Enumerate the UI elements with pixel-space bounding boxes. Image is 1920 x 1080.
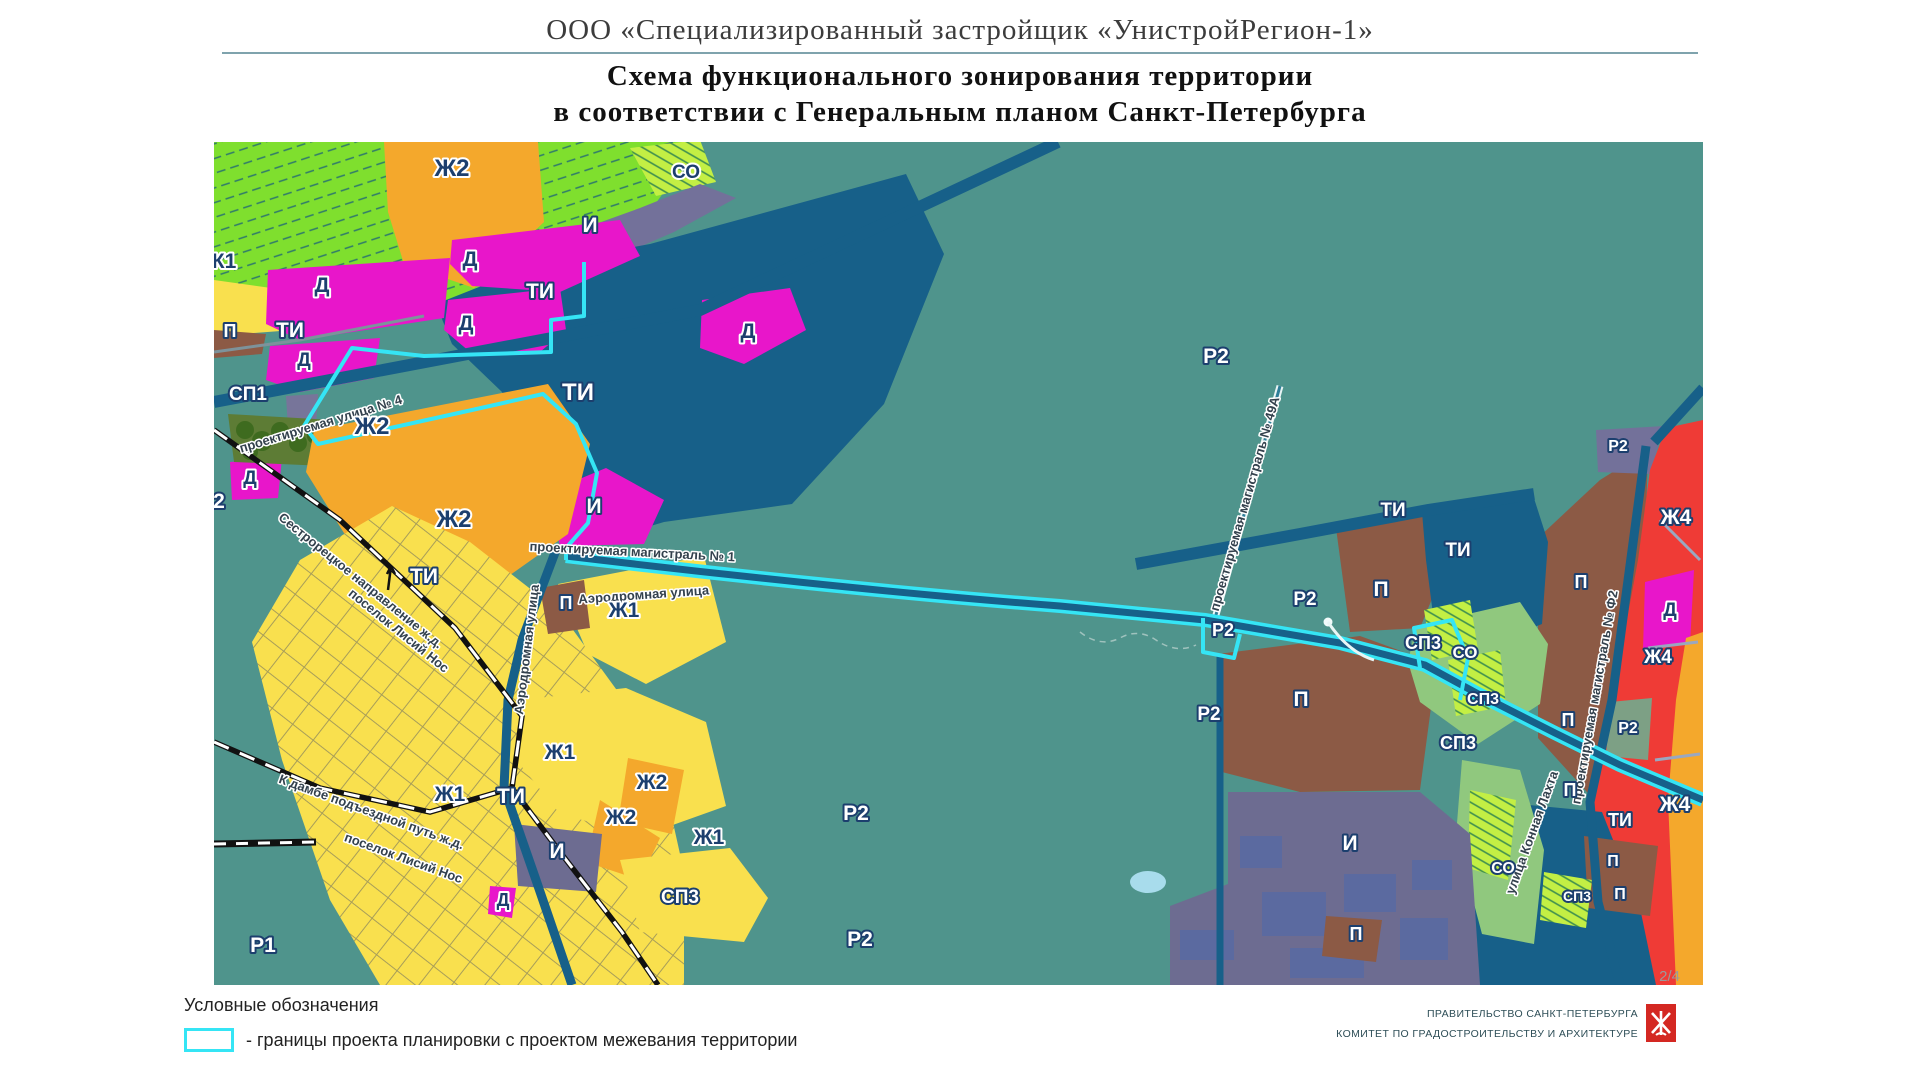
zone-label: Д: [741, 320, 756, 343]
zone-label: К1: [214, 250, 237, 273]
scheme-title-line2: в соответствии с Генеральным планом Санк…: [0, 96, 1920, 129]
zone-label: П: [1373, 578, 1388, 601]
zone-label: ТИ: [1608, 810, 1632, 830]
zone-label: Ж1: [693, 826, 725, 849]
zone-label: Д: [497, 890, 510, 910]
title-divider: [222, 52, 1698, 54]
zone-label: П: [1293, 688, 1308, 711]
zone-label: Ж4: [1659, 793, 1691, 816]
zone-label: И: [582, 214, 597, 237]
zone-label: ТИ: [276, 319, 304, 342]
zoning-map-svg: проектируемая улица № 4Сестрорецкое напр…: [214, 142, 1703, 985]
zone-label: Д: [459, 312, 474, 335]
zone-label: Ж1: [434, 783, 466, 806]
zone-label: СП3: [1467, 691, 1499, 708]
zone-label: СП3: [1440, 733, 1476, 753]
zone-label: И: [586, 495, 601, 518]
zone-label: ТИ: [410, 565, 438, 588]
page-number: 2/4: [1620, 968, 1680, 985]
zone-label: Р2: [1608, 438, 1628, 455]
authority-line1: ПРАВИТЕЛЬСТВО САНКТ-ПЕТЕРБУРГА: [1180, 1004, 1638, 1024]
organization-title: ООО «Специализированный застройщик «Унис…: [0, 14, 1920, 47]
zone-label: Ж1: [608, 599, 640, 622]
legend-item-label: - границы проекта планировки с проектом …: [246, 1030, 797, 1051]
legend-title: Условные обозначения: [184, 995, 378, 1016]
zone-label: ТИ: [1445, 540, 1470, 561]
zone-label: П: [1350, 924, 1363, 944]
zone-label: Р2: [843, 802, 869, 825]
zone-label: Р2: [1203, 345, 1229, 368]
zone-label: Д: [297, 350, 311, 371]
zone-label: Р2: [1212, 620, 1234, 640]
zone-label: СО: [1452, 643, 1477, 662]
zone-label: Р2: [847, 928, 873, 951]
zone-label: СП3: [661, 887, 699, 908]
zone-label: П: [1575, 572, 1588, 592]
zone-label: Д: [243, 468, 257, 489]
zone-label: И: [1342, 832, 1357, 855]
zone-label: ТИ: [562, 379, 594, 406]
zone-label: Р2: [1197, 704, 1220, 725]
zone-label: П: [1607, 853, 1619, 870]
kga-emblem-icon: [1649, 1008, 1673, 1038]
scheme-title-line1: Схема функционального зонирования террит…: [0, 60, 1920, 93]
kga-logo: [1646, 1004, 1676, 1042]
zone-label: П: [1562, 710, 1575, 730]
zone-label: Ж4: [1643, 647, 1672, 668]
project-boundary-swatch: [184, 1028, 234, 1052]
authority-block: ПРАВИТЕЛЬСТВО САНКТ-ПЕТЕРБУРГА КОМИТЕТ П…: [1180, 1004, 1638, 1044]
zone-label: ТИ: [497, 785, 525, 808]
zone-label: Ж2: [605, 806, 637, 829]
zone-label: П: [560, 593, 573, 613]
zoning-map: проектируемая улица № 4Сестрорецкое напр…: [214, 142, 1703, 985]
zone-label: СП3: [1405, 633, 1441, 653]
zone-label: Ж2: [353, 413, 389, 440]
document-page: ООО «Специализированный застройщик «Унис…: [0, 0, 1920, 1080]
zone-label: ТИ: [1380, 500, 1405, 521]
zone-label: Ж1: [544, 741, 576, 764]
zone-label: П: [1614, 886, 1626, 903]
zone-label: СП3: [1563, 888, 1591, 904]
zone-label: Ж2: [636, 771, 668, 794]
zone-label: Р2: [1618, 720, 1638, 737]
zone-label: Ж2: [435, 506, 471, 533]
zone-label: Р2: [1293, 589, 1316, 610]
zone-label: 2: [214, 490, 225, 513]
zone-label: ТИ: [526, 280, 554, 303]
zone-label: СО: [1491, 860, 1515, 877]
zone-label: Д: [463, 248, 478, 271]
legend-item: - границы проекта планировки с проектом …: [184, 1028, 797, 1052]
zone-label: Р1: [250, 934, 276, 957]
zone-label: П: [1564, 780, 1577, 800]
authority-line2: КОМИТЕТ ПО ГРАДОСТРОИТЕЛЬСТВУ И АРХИТЕКТ…: [1180, 1024, 1638, 1044]
zone-label: П: [224, 321, 237, 341]
zone-label: И: [549, 840, 564, 863]
zone-label: Ж4: [1660, 506, 1692, 529]
zone-label: СО: [672, 162, 700, 183]
zone-label: Д: [315, 274, 330, 297]
zone-label: Д: [1663, 600, 1677, 621]
zone-label: Ж2: [433, 155, 469, 182]
map-zones: [214, 142, 1703, 985]
zone-label: СП1: [229, 384, 267, 405]
